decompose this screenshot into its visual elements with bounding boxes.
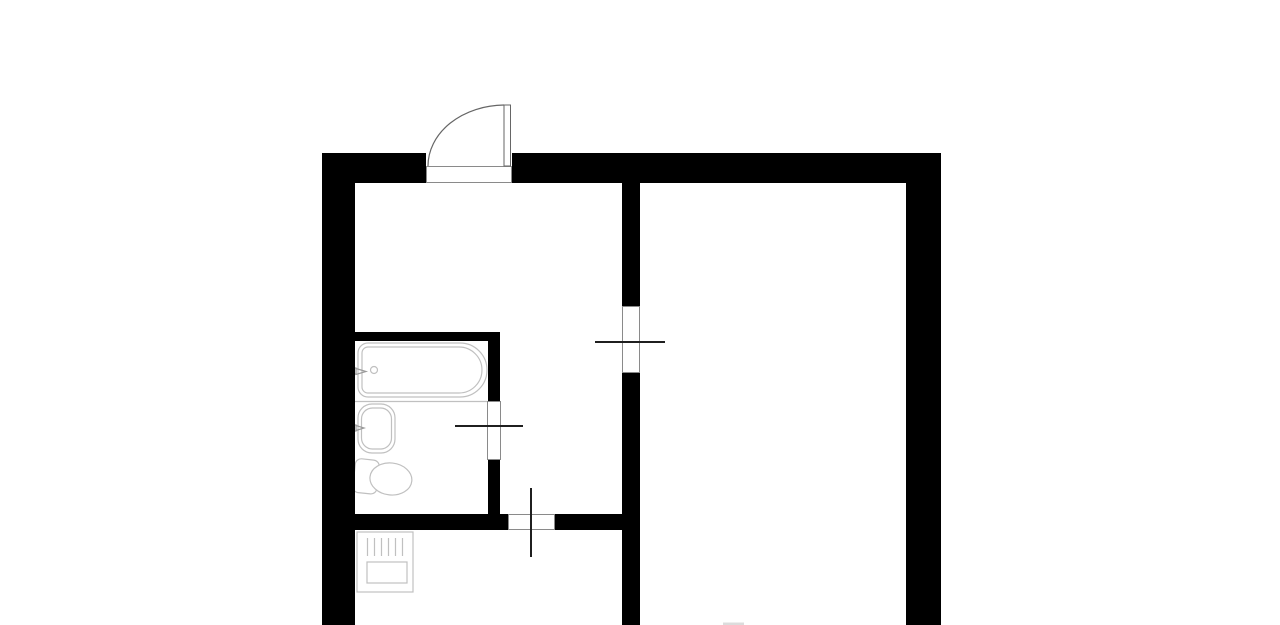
kitchen-wall-right [555,514,623,530]
bathroom-right-wall-upper [488,332,500,401]
floorplan-canvas [0,0,1280,625]
right-wall [906,153,941,625]
floorplan-svg [0,0,1280,625]
left-wall [322,153,355,625]
top-wall-right [512,153,941,183]
bathroom-door-jamb [488,402,501,460]
divider-wall-lower [622,373,640,625]
bathroom-top-wall [354,332,500,341]
room-door-jamb [623,307,640,373]
divider-wall-upper [622,180,640,306]
kitchen-wall-left [354,514,508,530]
entrance-threshold [427,167,512,183]
entrance-door-leaf [504,105,511,166]
